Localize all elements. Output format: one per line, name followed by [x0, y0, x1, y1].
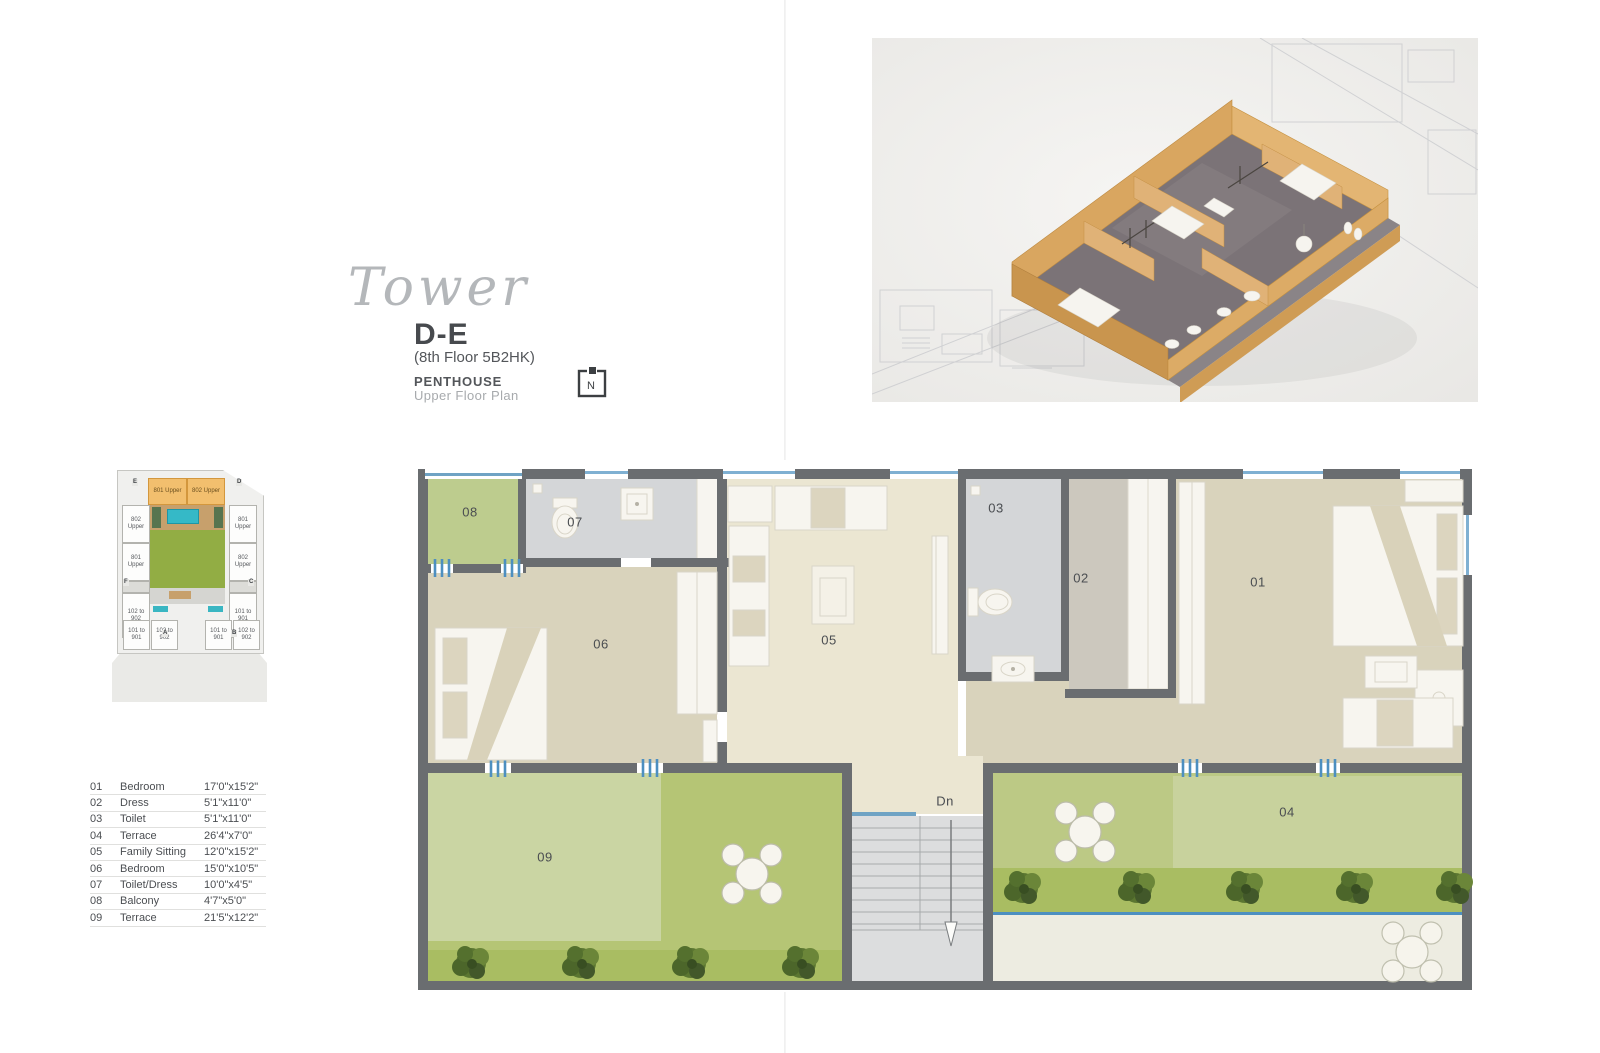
legend-row: 05Family Sitting12'0"x15'2"	[90, 845, 266, 861]
keyplan-pool	[167, 509, 199, 524]
keyplan-unit: 802 Upper	[229, 543, 257, 581]
keyplan-lawn	[150, 530, 225, 588]
keyplan-unit: 801 Upper	[229, 505, 257, 543]
keyplan-wing-b: B	[231, 630, 237, 637]
keyplan-wing-c: C	[248, 579, 254, 586]
keyplan-kiosk	[169, 591, 191, 599]
keyplan-unit: 101 to 901	[205, 620, 232, 650]
tower-name: D-E	[414, 318, 469, 352]
keyplan-wing-e: E	[132, 479, 138, 486]
plan-type: PENTHOUSE	[414, 374, 502, 389]
keyplan-unit-highlight: 802 Upper	[187, 478, 225, 505]
isometric-3d-render	[872, 38, 1478, 402]
legend-row: 01Bedroom17'0"x15'2"	[90, 779, 266, 795]
legend-row: 04Terrace26'4"x7'0"	[90, 828, 266, 844]
legend-row: 03Toilet5'1"x11'0"	[90, 812, 266, 828]
north-indicator-icon: N	[577, 366, 607, 398]
keyplan-wing-a: A	[162, 630, 168, 637]
room-label-05: 05	[821, 633, 836, 648]
key-plan: 801 Upper 802 Upper 802 Upper 801 Upper …	[112, 458, 270, 708]
room-label-08: 08	[462, 505, 477, 520]
north-label: N	[587, 380, 595, 392]
room-label-09: 09	[537, 850, 552, 865]
legend-row: 06Bedroom15'0"x10'5"	[90, 861, 266, 877]
legend-row: 07Toilet/Dress10'0"x4'5"	[90, 877, 266, 893]
keyplan-unit: 801 Upper	[122, 543, 150, 581]
legend-row: 08Balcony4'7"x5'0"	[90, 894, 266, 910]
keyplan-wing-f: F	[123, 579, 129, 586]
floor-plan: 08 07 06 05 03 02 01 09 04 Dn	[415, 460, 1475, 992]
room-label-06: 06	[593, 637, 608, 652]
keyplan-water	[153, 606, 168, 612]
keyplan-wing-d: D	[236, 479, 242, 486]
keyplan-water	[208, 606, 223, 612]
keyplan-planter	[214, 507, 223, 528]
keyplan-unit-highlight: 801 Upper	[148, 478, 187, 505]
legend-row: 02Dress5'1"x11'0"	[90, 795, 266, 811]
stairs-down-label: Dn	[936, 794, 954, 809]
room-label-02: 02	[1073, 571, 1088, 586]
tower-script-title: Tower	[348, 258, 530, 318]
keyplan-base	[112, 650, 267, 702]
plan-subtype: Upper Floor Plan	[414, 388, 519, 403]
keyplan-unit: 101 to 901	[123, 620, 150, 650]
keyplan-unit: 802 Upper	[122, 505, 150, 543]
room-legend: 01Bedroom17'0"x15'2" 02Dress5'1"x11'0" 0…	[90, 779, 266, 927]
room-label-04: 04	[1279, 805, 1294, 820]
legend-row: 09Terrace21'5"x12'2"	[90, 910, 266, 926]
room-label-01: 01	[1250, 575, 1265, 590]
room-label-07: 07	[567, 515, 582, 530]
keyplan-planter	[152, 507, 161, 528]
room-label-03: 03	[988, 501, 1003, 516]
floor-info: (8th Floor 5B2HK)	[414, 349, 535, 366]
brochure-page: Tower D-E (8th Floor 5B2HK) PENTHOUSE Up…	[0, 0, 1600, 1053]
